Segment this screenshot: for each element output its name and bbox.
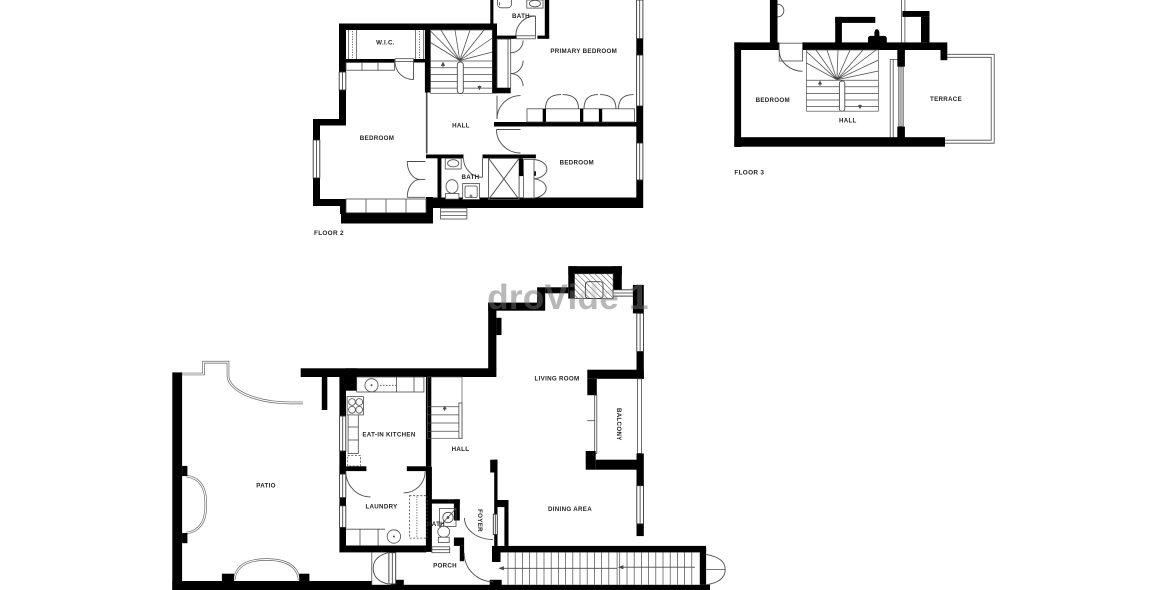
svg-text:BEDROOM: BEDROOM xyxy=(360,135,394,142)
svg-text:BATH: BATH xyxy=(427,521,445,528)
svg-text:W.I.C.: W.I.C. xyxy=(376,39,395,46)
svg-text:LIVING ROOM: LIVING ROOM xyxy=(535,376,580,383)
svg-text:TERRACE: TERRACE xyxy=(930,96,962,103)
svg-text:LAUNDRY: LAUNDRY xyxy=(365,504,398,511)
svg-text:BALCONY: BALCONY xyxy=(615,408,622,441)
svg-text:BATH: BATH xyxy=(512,13,530,20)
svg-text:EAT-IN KITCHEN: EAT-IN KITCHEN xyxy=(362,431,415,438)
svg-text:FLOOR 2: FLOOR 2 xyxy=(314,230,344,237)
svg-text:BEDROOM: BEDROOM xyxy=(756,97,790,104)
svg-text:FLOOR 3: FLOOR 3 xyxy=(734,169,764,176)
svg-text:HALL: HALL xyxy=(452,122,470,129)
svg-text:droVide 1: droVide 1 xyxy=(487,278,649,317)
svg-text:HALL: HALL xyxy=(452,446,470,453)
svg-text:PATIO: PATIO xyxy=(256,483,276,490)
svg-text:BEDROOM: BEDROOM xyxy=(560,160,594,167)
svg-text:PRIMARY BEDROOM: PRIMARY BEDROOM xyxy=(550,48,617,55)
svg-text:BATH: BATH xyxy=(462,174,480,181)
svg-text:HALL: HALL xyxy=(839,117,857,124)
svg-text:DINING AREA: DINING AREA xyxy=(548,506,592,513)
svg-text:PORCH: PORCH xyxy=(433,562,457,569)
svg-text:FOYER: FOYER xyxy=(476,509,483,532)
